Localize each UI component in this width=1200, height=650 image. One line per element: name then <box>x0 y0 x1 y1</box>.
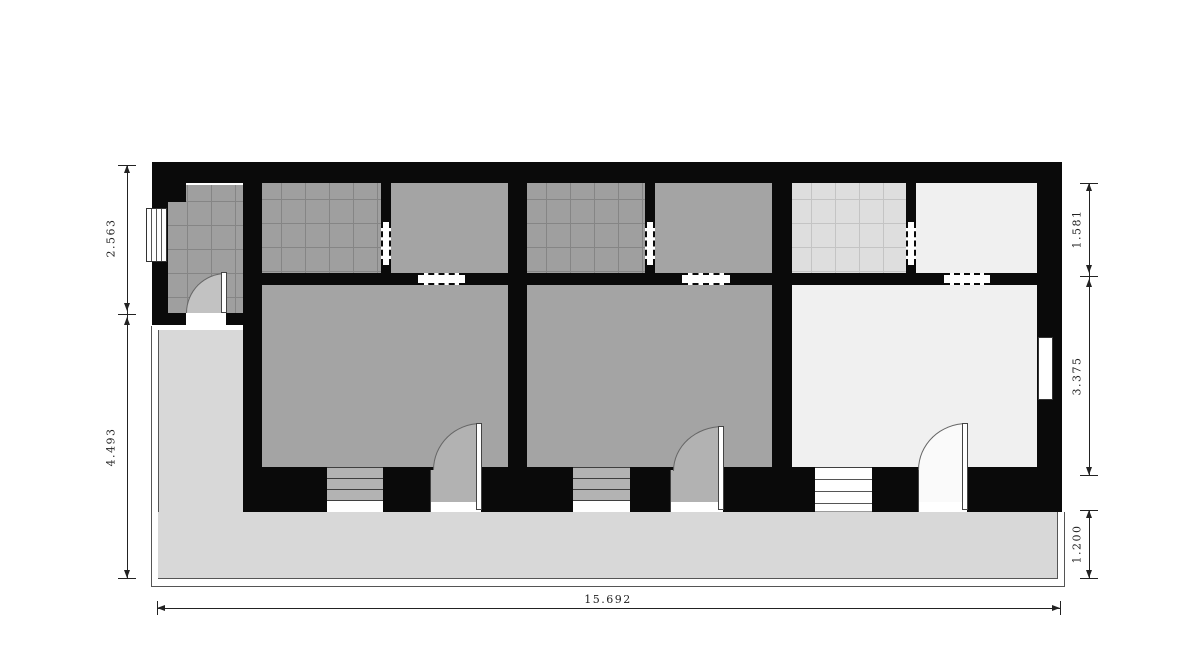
dim-tick <box>1080 475 1098 476</box>
dim-arrow <box>1052 605 1060 611</box>
opening-dashed-unit1-main <box>418 273 465 285</box>
dim-arrow <box>124 303 130 311</box>
dim-arrow <box>1086 183 1092 191</box>
terrace-outline-right <box>1064 512 1065 587</box>
dim-line-bottom <box>157 608 1060 609</box>
dim-line-right-upper <box>1089 183 1090 475</box>
door-gap-unit2 <box>670 470 723 502</box>
dim-arrow <box>1086 279 1092 287</box>
dim-arrow <box>1086 510 1092 518</box>
dim-tick <box>1060 601 1061 615</box>
door-jamb-unit2 <box>670 470 671 515</box>
dim-label-left-top: 2.563 <box>105 219 118 258</box>
dim-arrow <box>1086 467 1092 475</box>
room-unit2-bathroom <box>527 183 645 273</box>
wall-vestibule-bottom-left <box>152 313 186 325</box>
door-leaf-unit2 <box>718 426 724 510</box>
door-gap-unit1 <box>430 470 481 502</box>
door-leaf-unit3 <box>962 423 968 510</box>
room-unit3-back <box>916 183 1037 273</box>
dim-label-right-middle: 3.375 <box>1071 357 1084 396</box>
opening-dashed-unit1 <box>381 222 391 265</box>
wall-mid-horizontal <box>262 273 1062 285</box>
dim-arrow <box>124 570 130 578</box>
dim-label-left-bottom: 4.493 <box>105 428 118 467</box>
terrace-outline-bottom <box>151 586 1065 587</box>
window-glazing <box>573 467 630 501</box>
window-unit1-south <box>327 467 383 512</box>
dim-arrow <box>124 317 130 325</box>
room-unit2-main <box>527 285 772 467</box>
threshold-vestibule <box>186 313 226 327</box>
wall-top <box>152 162 1062 183</box>
wall-top-left-step <box>152 183 186 202</box>
opening-dashed-unit2-main <box>682 273 730 285</box>
dim-label-right-top: 1.581 <box>1071 210 1084 249</box>
opening-dashed-unit2 <box>645 222 655 265</box>
door-jamb-unit1 <box>430 470 431 515</box>
window-unit3-south <box>815 467 872 512</box>
window-left-wall <box>146 208 167 262</box>
window-right-wall <box>1038 337 1053 400</box>
dim-label-bottom-total: 15.692 <box>584 593 632 606</box>
dim-arrow <box>124 165 130 173</box>
room-unit2-back <box>655 183 772 273</box>
door-leaf-unit1 <box>476 423 482 510</box>
door-gap-unit3 <box>918 470 967 502</box>
dim-tick <box>1080 578 1098 579</box>
room-unit3-main <box>792 285 1037 467</box>
wall-divider-unit2-3 <box>772 183 792 512</box>
room-unit1-bathroom <box>262 183 381 273</box>
wall-vestibule-bottom-right <box>226 313 262 325</box>
door-jamb-unit3 <box>918 470 919 515</box>
room-unit3-bathroom <box>792 183 906 273</box>
wall-vestibule-right <box>243 183 262 470</box>
dim-line-right-lower <box>1089 510 1090 578</box>
door-leaf-vestibule <box>221 272 227 313</box>
dim-arrow <box>1086 570 1092 578</box>
dim-line-left <box>127 165 128 578</box>
terrace-outline-left <box>151 326 152 587</box>
dim-arrow <box>157 605 165 611</box>
window-unit2-south <box>573 467 630 512</box>
terrace-bottom <box>158 512 1058 579</box>
room-unit1-back <box>391 183 508 273</box>
dim-arrow <box>1086 265 1092 273</box>
floor-plan-canvas: 2.563 4.493 1.581 3.375 1.200 15.692 <box>0 0 1200 650</box>
dim-tick <box>118 578 136 579</box>
dim-tick <box>1080 276 1098 277</box>
dim-label-right-bottom: 1.200 <box>1071 525 1084 564</box>
wall-divider-unit1-2 <box>508 183 527 512</box>
window-glazing <box>327 467 383 501</box>
opening-dashed-unit3-main <box>944 273 990 285</box>
opening-dashed-unit3 <box>906 222 916 265</box>
dim-tick <box>118 314 136 315</box>
